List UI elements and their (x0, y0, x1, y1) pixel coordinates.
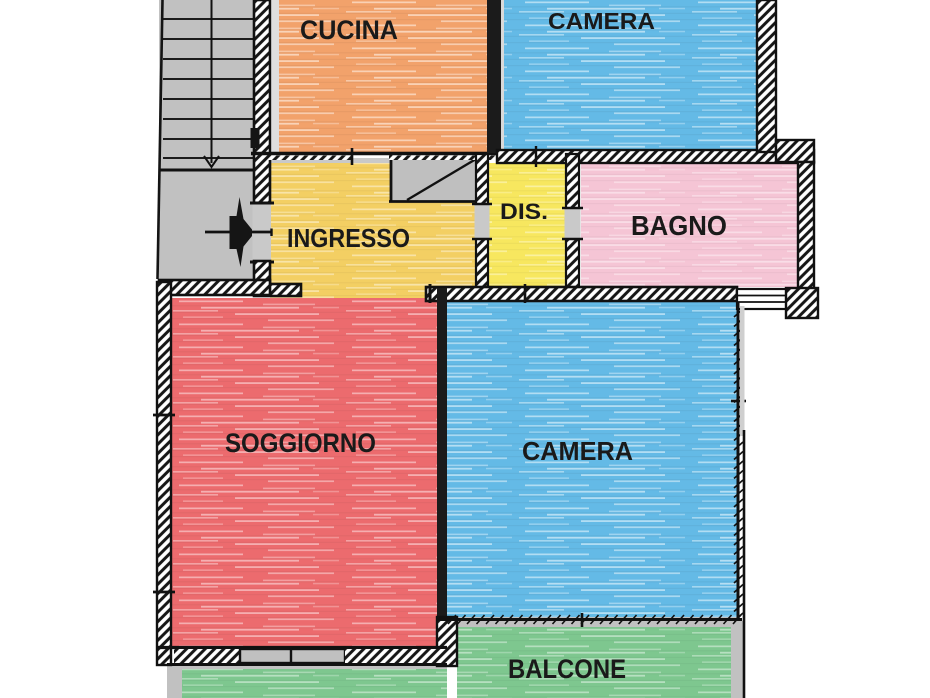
svg-text:SOGGIORNO: SOGGIORNO (225, 428, 376, 458)
svg-text:CAMERA: CAMERA (548, 8, 655, 34)
svg-text:BAGNO: BAGNO (631, 210, 727, 241)
svg-text:BALCONE: BALCONE (508, 654, 626, 684)
svg-text:INGRESSO: INGRESSO (287, 223, 410, 253)
svg-text:DIS.: DIS. (500, 199, 548, 224)
svg-text:CUCINA: CUCINA (300, 15, 398, 45)
svg-text:CAMERA: CAMERA (522, 436, 633, 466)
